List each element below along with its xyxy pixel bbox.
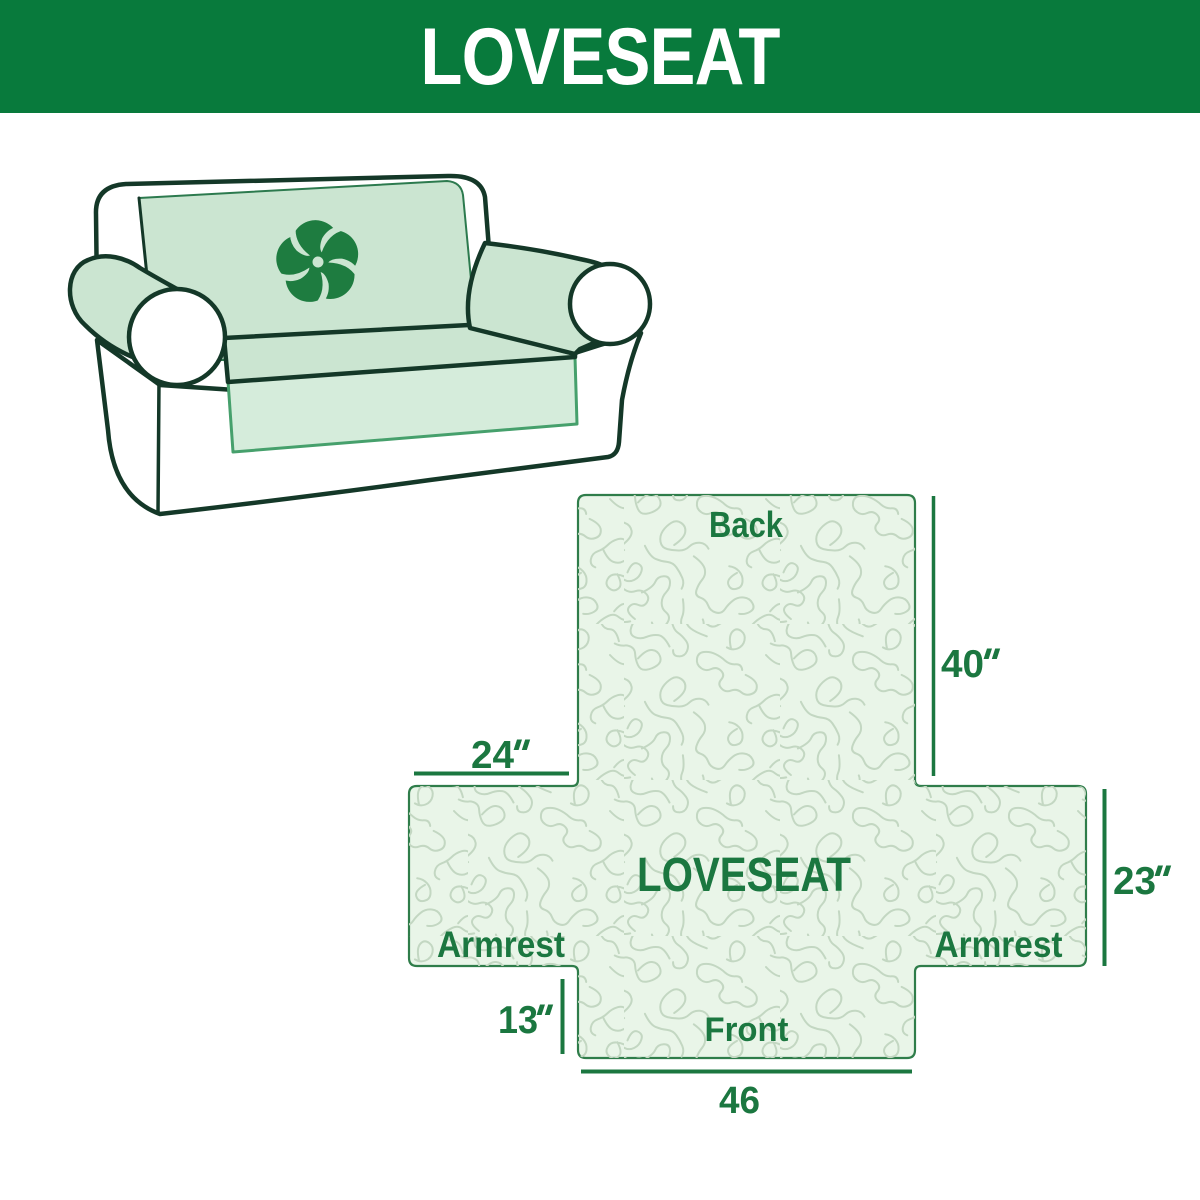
svg-text:Back: Back [709, 504, 784, 545]
svg-text:13: 13 [498, 999, 538, 1042]
svg-text:Front: Front [705, 1011, 789, 1049]
svg-text:40: 40 [941, 643, 984, 686]
svg-text:46: 46 [719, 1080, 760, 1122]
svg-text:Armrest: Armrest [437, 924, 565, 965]
svg-text:23: 23 [1113, 860, 1156, 903]
svg-text:24: 24 [471, 734, 514, 777]
svg-text:Armrest: Armrest [935, 924, 1063, 965]
svg-text:LOVESEAT: LOVESEAT [637, 849, 851, 902]
